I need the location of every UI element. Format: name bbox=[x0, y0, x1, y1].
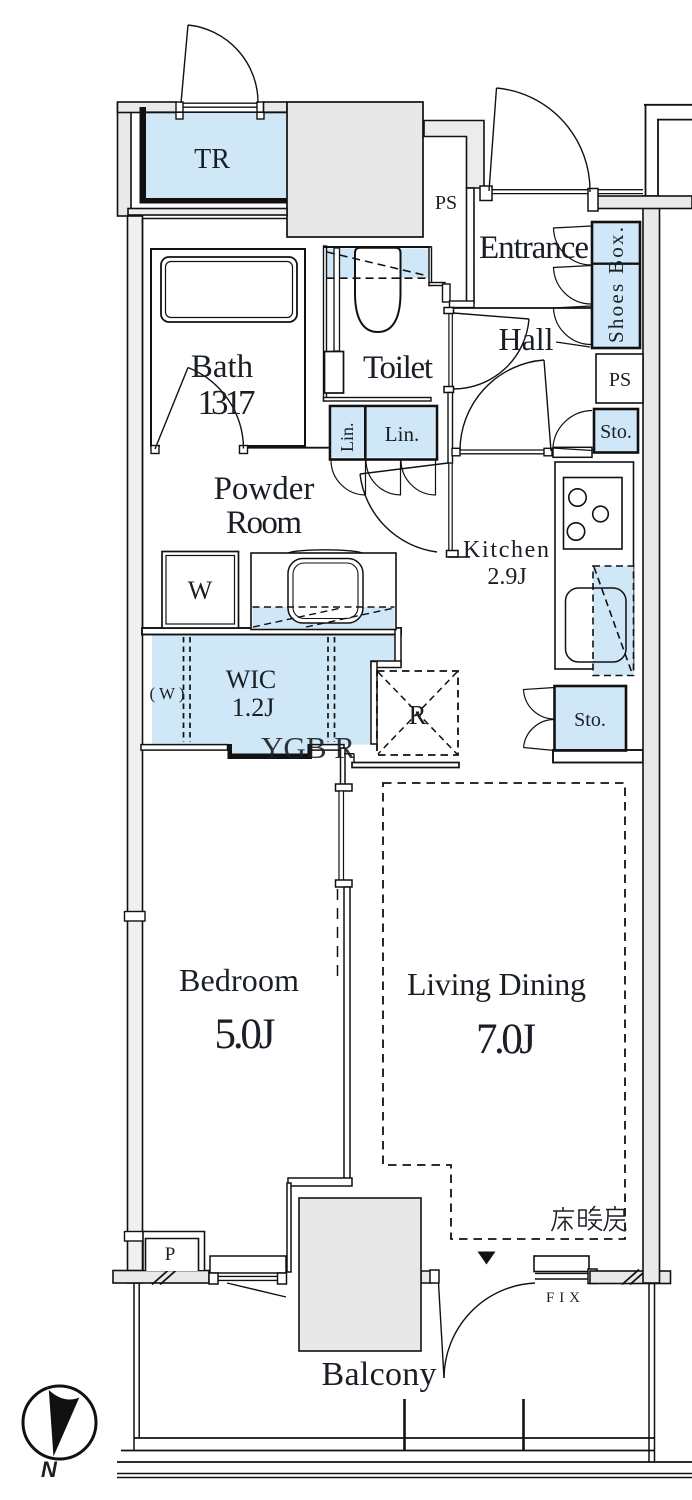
svg-text:1.2J: 1.2J bbox=[232, 693, 275, 722]
svg-text:Powder: Powder bbox=[214, 471, 315, 507]
svg-text:1317: 1317 bbox=[198, 383, 256, 422]
svg-text:WIC: WIC bbox=[226, 665, 277, 694]
svg-text:PS: PS bbox=[609, 369, 631, 391]
svg-text:Balcony: Balcony bbox=[322, 1356, 437, 1393]
svg-text:Kitchen: Kitchen bbox=[463, 537, 549, 563]
svg-text:7.0J: 7.0J bbox=[476, 1016, 536, 1063]
svg-text:YGB R: YGB R bbox=[261, 730, 355, 765]
svg-text:Sto.: Sto. bbox=[600, 421, 632, 443]
svg-text:Bath: Bath bbox=[191, 349, 254, 385]
svg-text:W: W bbox=[188, 576, 213, 605]
svg-text:Lin.: Lin. bbox=[337, 423, 357, 453]
svg-text:Living Dining: Living Dining bbox=[407, 966, 586, 1002]
svg-text:Room: Room bbox=[226, 505, 302, 541]
svg-text:Sto.: Sto. bbox=[574, 709, 606, 731]
svg-text:P: P bbox=[165, 1244, 176, 1265]
svg-text:PS: PS bbox=[435, 192, 457, 214]
svg-text:Toilet: Toilet bbox=[363, 350, 433, 386]
svg-text:Hall: Hall bbox=[498, 321, 553, 357]
svg-text:R: R bbox=[408, 700, 426, 730]
svg-text:2.9J: 2.9J bbox=[487, 564, 526, 590]
svg-text:TR: TR bbox=[194, 144, 230, 175]
svg-text:FIX: FIX bbox=[546, 1290, 580, 1306]
svg-text:(W): (W) bbox=[150, 684, 185, 703]
svg-text:N: N bbox=[41, 1457, 58, 1482]
svg-text:Shoes Box.: Shoes Box. bbox=[604, 227, 628, 343]
svg-text:Bedroom: Bedroom bbox=[179, 962, 299, 998]
svg-text:Entrance: Entrance bbox=[479, 230, 589, 266]
svg-text:5.0J: 5.0J bbox=[215, 1011, 276, 1058]
svg-text:Lin.: Lin. bbox=[385, 422, 419, 446]
